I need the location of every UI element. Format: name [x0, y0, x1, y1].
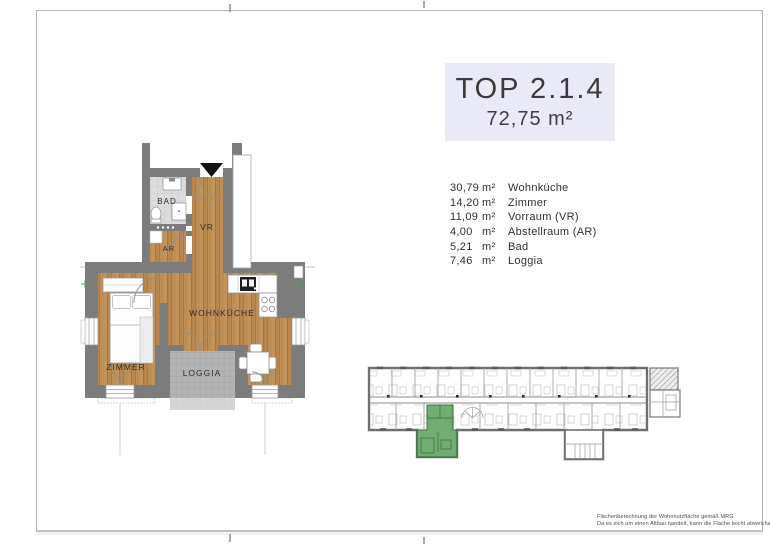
- room-unit: m²: [482, 226, 508, 241]
- room-area: 30,79: [450, 182, 482, 197]
- room-name: Wohnküche: [508, 182, 680, 197]
- label-zimmer: ZIMMER: [106, 362, 146, 372]
- label-vr: VR: [200, 222, 214, 232]
- unit-total-area: 72,75 m²: [487, 106, 574, 132]
- parapet-sill: [98, 398, 155, 403]
- room-area-list: 30,79m²Wohnküche 14,20m²Zimmer 11,09m²Vo…: [450, 182, 680, 270]
- building-overview-plan: [362, 352, 698, 468]
- label-loggia: LOGGIA: [183, 368, 222, 378]
- unit-title: TOP 2.1.4: [455, 72, 604, 106]
- lightwell: [233, 155, 251, 268]
- label-ar: AR: [163, 244, 175, 253]
- side-annex: [650, 368, 680, 417]
- axis-lines: [120, 403, 265, 455]
- room-name: Loggia: [508, 255, 680, 270]
- footer-line2: Da es sich um einen Altbau handelt, kann…: [597, 521, 767, 528]
- overview-drawing: [362, 352, 698, 468]
- floor-plan-drawing: BAD AR VR WOHNKÜCHE ZIMMER LOGGIA: [80, 130, 315, 465]
- room-unit: m²: [482, 241, 508, 256]
- entrance-arrow-icon: [200, 163, 223, 177]
- loggia-floor-extension: [170, 398, 235, 410]
- room-area: 7,46: [450, 255, 482, 270]
- wohnkueche-floor: [277, 318, 292, 385]
- room-unit: m²: [482, 182, 508, 197]
- room-name: Vorraum (VR): [508, 211, 680, 226]
- edge-tick: [229, 534, 231, 542]
- room-unit: m²: [482, 255, 508, 270]
- edge-tick: [423, 537, 425, 544]
- stair-annex: [565, 430, 603, 459]
- room-area: 4,00: [450, 226, 482, 241]
- room-area: 14,20: [450, 197, 482, 212]
- room-unit: m²: [482, 211, 508, 226]
- floorplan-sheet: { "title": "TOP 2.1.4", "area_total": "7…: [0, 0, 770, 545]
- parapet-sill: [252, 398, 292, 403]
- room-unit: m²: [482, 197, 508, 212]
- footer-note: Flächenberechnung der Wohnnutzfläche gem…: [597, 514, 767, 529]
- footer-line1: Flächenberechnung der Wohnnutzfläche gem…: [597, 514, 767, 521]
- label-bad: BAD: [157, 197, 176, 206]
- title-block: TOP 2.1.4 72,75 m²: [445, 63, 615, 141]
- room-area: 11,09: [450, 211, 482, 226]
- ar-niche: [150, 231, 162, 243]
- room-area: 5,21: [450, 241, 482, 256]
- apartment-floor-plan: BAD AR VR WOHNKÜCHE ZIMMER LOGGIA: [80, 130, 315, 465]
- room-name: Bad: [508, 241, 680, 256]
- room-name: Abstellraum (AR): [508, 226, 680, 241]
- edge-tick: [229, 4, 231, 12]
- room-name: Zimmer: [508, 197, 680, 212]
- units-texture: [370, 369, 646, 396]
- edge-tick: [423, 1, 425, 8]
- label-wohnkueche: WOHNKÜCHE: [189, 308, 255, 318]
